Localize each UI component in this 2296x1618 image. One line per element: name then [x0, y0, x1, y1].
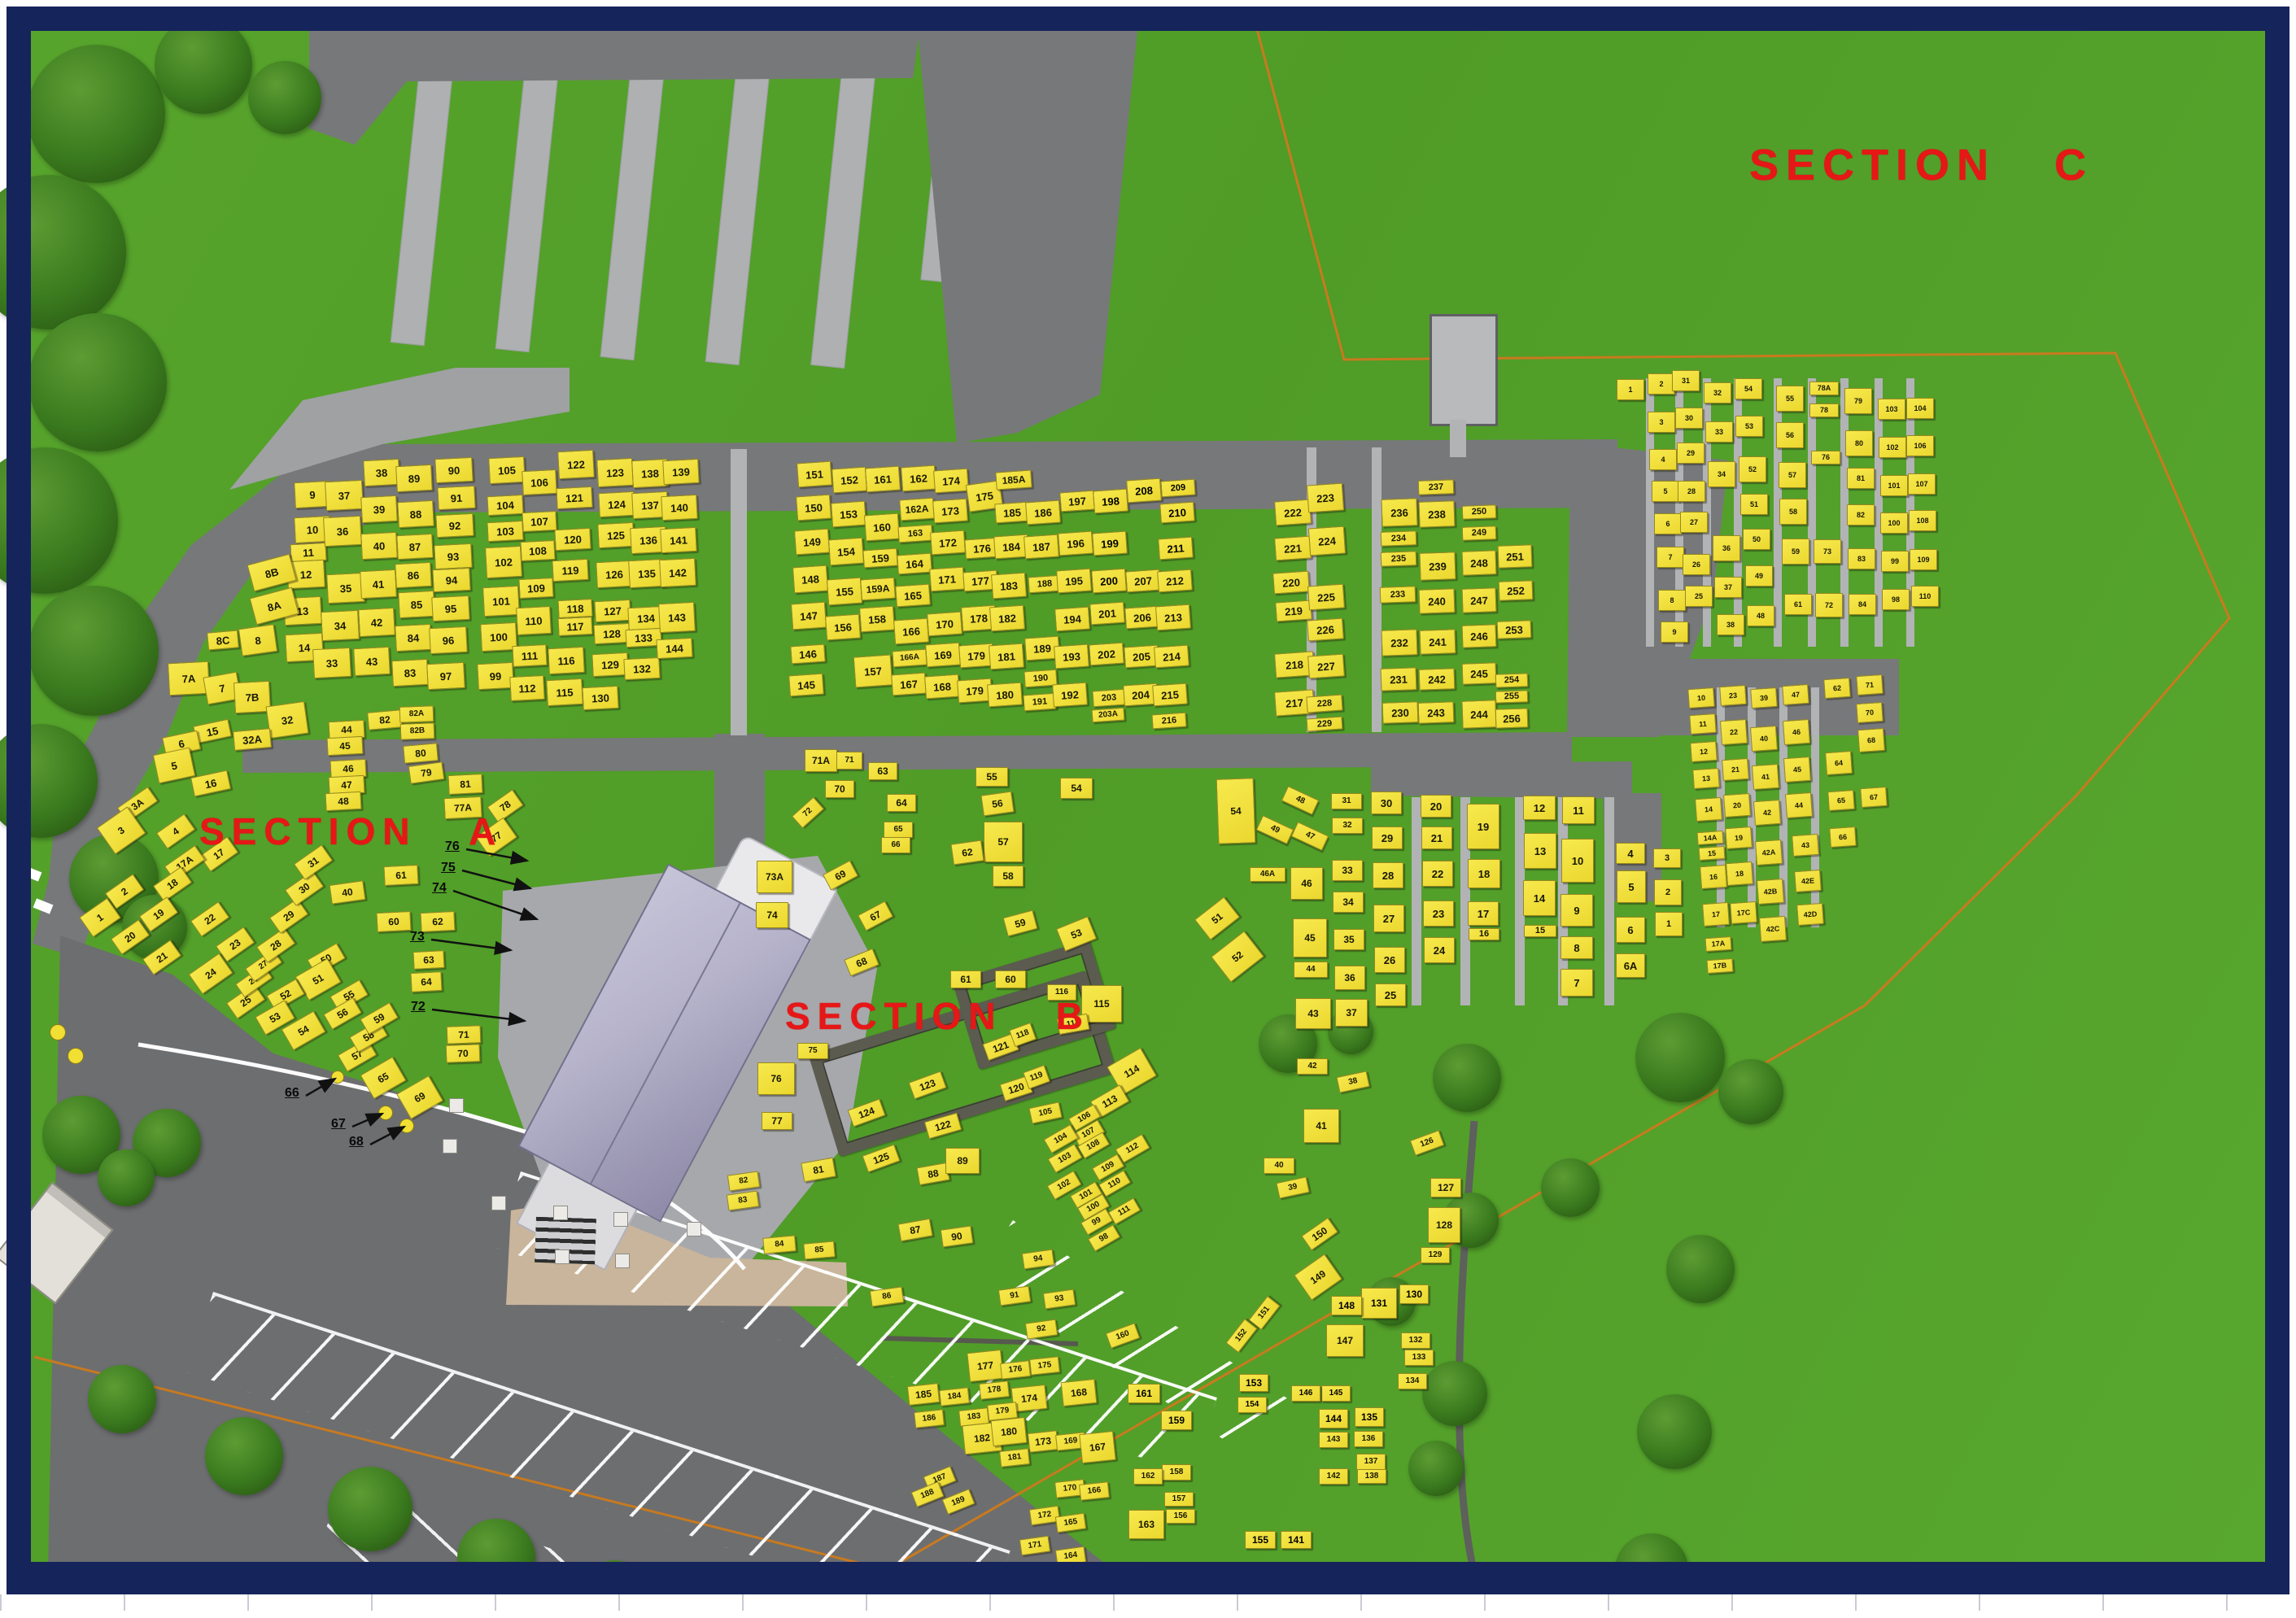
plot-sectionC-top-37[interactable]: 37 [1714, 577, 1742, 598]
plot-band-199[interactable]: 199 [1092, 531, 1128, 556]
plot-sectionC-top-27[interactable]: 27 [1680, 512, 1708, 533]
plot-sectionB-186[interactable]: 186 [914, 1409, 945, 1428]
plot-sectionC-bottom-47[interactable]: 47 [1782, 684, 1809, 705]
plot-sectionC-top-31[interactable]: 31 [1672, 370, 1700, 391]
plot-band-211[interactable]: 211 [1158, 537, 1194, 560]
plot-sectionC-top-58[interactable]: 58 [1779, 499, 1807, 525]
plot-band-215[interactable]: 215 [1152, 683, 1188, 707]
plot-band-236[interactable]: 236 [1381, 498, 1417, 527]
plot-band-222[interactable]: 222 [1274, 499, 1312, 526]
plot-band-141[interactable]: 141 [660, 527, 697, 553]
plot-band-224[interactable]: 224 [1308, 526, 1346, 556]
plot-sectionB-34[interactable]: 34 [1333, 892, 1364, 913]
plot-sectionC-top-82[interactable]: 82 [1847, 504, 1875, 526]
plot-sectionC-top-36[interactable]: 36 [1713, 535, 1740, 561]
plot-sectionB-42[interactable]: 42 [1297, 1058, 1328, 1075]
plot-band-238[interactable]: 238 [1418, 500, 1455, 528]
plot-sectionB-155[interactable]: 155 [1245, 1531, 1276, 1549]
plot-sectionC-top-61[interactable]: 61 [1784, 594, 1812, 615]
plot-sectionB-148[interactable]: 148 [1331, 1296, 1362, 1315]
plot-band-91[interactable]: 91 [437, 486, 475, 510]
plot-sectionC-bottom-41[interactable]: 41 [1752, 764, 1779, 790]
plot-sectionB-128[interactable]: 128 [1428, 1207, 1460, 1243]
plot-band-187[interactable]: 187 [1024, 534, 1059, 560]
plot-sectionC-top-56[interactable]: 56 [1776, 422, 1804, 448]
plot-sectionA-45[interactable]: 45 [326, 736, 363, 756]
plot-band-161[interactable]: 161 [865, 466, 901, 493]
plot-sectionC-top-106[interactable]: 106 [1906, 435, 1934, 456]
plot-sectionC-bottom-66[interactable]: 66 [1829, 826, 1857, 848]
plot-sectionC-bottom-19[interactable]: 19 [1725, 826, 1753, 849]
plot-sectionC-bottom-12[interactable]: 12 [1690, 741, 1718, 762]
plot-sectionC-bottom-44[interactable]: 44 [1785, 792, 1813, 818]
plot-band-148[interactable]: 148 [792, 565, 828, 594]
plot-sectionB-54[interactable]: 54 [1060, 778, 1093, 799]
plot-sectionC-top-3[interactable]: 3 [1648, 412, 1675, 433]
plot-sectionC-bottom-13[interactable]: 13 [1692, 768, 1720, 789]
plot-midblock-17[interactable]: 17 [1468, 901, 1499, 926]
plot-sectionB-144[interactable]: 144 [1319, 1409, 1348, 1428]
plot-sectionC-top-6[interactable]: 6 [1654, 513, 1682, 534]
plot-band-32A[interactable]: 32A [233, 728, 272, 751]
plot-sectionB-33[interactable]: 33 [1332, 860, 1363, 881]
plot-midblock-4[interactable]: 4 [1616, 843, 1645, 864]
plot-band-41[interactable]: 41 [360, 569, 397, 599]
plot-sectionB-185[interactable]: 185 [907, 1383, 940, 1406]
plot-band-174[interactable]: 174 [933, 469, 969, 494]
plot-midblock-15[interactable]: 15 [1524, 925, 1556, 937]
plot-band-117[interactable]: 117 [557, 617, 592, 636]
plot-band-234[interactable]: 234 [1381, 530, 1417, 547]
plot-band-145[interactable]: 145 [788, 674, 824, 697]
plot-band-119[interactable]: 119 [552, 559, 588, 582]
plot-sectionC-bottom-42E[interactable]: 42E [1794, 870, 1822, 892]
plot-sectionC-top-8[interactable]: 8 [1658, 590, 1686, 611]
plot-sectionC-top-4[interactable]: 4 [1649, 449, 1677, 470]
plot-band-126[interactable]: 126 [596, 560, 633, 588]
plot-sectionC-bottom-70[interactable]: 70 [1856, 702, 1884, 723]
plot-sectionC-top-7[interactable]: 7 [1657, 547, 1684, 568]
plot-midblock-1[interactable]: 1 [1655, 912, 1683, 936]
plot-band-147[interactable]: 147 [791, 602, 827, 630]
plot-band-196[interactable]: 196 [1058, 531, 1093, 556]
plot-sectionC-bottom-14A[interactable]: 14A [1696, 831, 1723, 845]
plot-sectionC-top-72[interactable]: 72 [1815, 593, 1843, 617]
plot-sectionB-85[interactable]: 85 [803, 1241, 836, 1259]
plot-band-163[interactable]: 163 [897, 525, 932, 543]
plot-sectionC-top-99[interactable]: 99 [1881, 551, 1909, 572]
plot-sectionC-bottom-62[interactable]: 62 [1823, 678, 1851, 699]
plot-sectionC-bottom-43[interactable]: 43 [1792, 834, 1819, 857]
plot-sectionB-168[interactable]: 168 [1061, 1379, 1098, 1406]
plot-band-92[interactable]: 92 [435, 513, 474, 538]
plot-sectionB-89[interactable]: 89 [945, 1148, 980, 1174]
plot-band-198[interactable]: 198 [1093, 489, 1128, 514]
plot-sectionB-159[interactable]: 159 [1161, 1411, 1192, 1430]
plot-band-202[interactable]: 202 [1089, 643, 1124, 666]
plot-band-154[interactable]: 154 [828, 538, 864, 566]
plot-band-216[interactable]: 216 [1151, 713, 1186, 730]
plot-sectionB-154[interactable]: 154 [1237, 1397, 1267, 1413]
plot-band-185[interactable]: 185 [994, 502, 1030, 524]
plot-sectionC-top-38[interactable]: 38 [1717, 614, 1744, 635]
plot-band-115[interactable]: 115 [546, 678, 583, 706]
plot-band-153[interactable]: 153 [831, 501, 866, 528]
plot-band-164[interactable]: 164 [897, 553, 932, 575]
plot-sectionB-62[interactable]: 62 [950, 840, 984, 865]
plot-band-159[interactable]: 159 [862, 548, 897, 569]
plot-band-33[interactable]: 33 [312, 648, 351, 678]
plot-sectionA-64[interactable]: 64 [410, 971, 442, 992]
plot-sectionC-bottom-10[interactable]: 10 [1687, 687, 1715, 709]
plot-band-83[interactable]: 83 [391, 659, 429, 687]
plot-sectionB-43[interactable]: 43 [1295, 998, 1331, 1029]
plot-sectionC-top-2[interactable]: 2 [1648, 373, 1675, 395]
plot-band-239[interactable]: 239 [1419, 552, 1456, 581]
plot-midblock-18[interactable]: 18 [1468, 859, 1500, 888]
plot-sectionB-41[interactable]: 41 [1303, 1109, 1339, 1143]
plot-band-221[interactable]: 221 [1274, 535, 1312, 560]
plot-sectionA-61[interactable]: 61 [383, 865, 418, 886]
plot-band-112[interactable]: 112 [509, 675, 545, 701]
plot-sectionB-65[interactable]: 65 [884, 822, 913, 838]
plot-sectionB-76[interactable]: 76 [757, 1062, 795, 1095]
plot-midblock-26[interactable]: 26 [1374, 947, 1405, 973]
plot-midblock-14[interactable]: 14 [1523, 880, 1556, 916]
plot-band-203A[interactable]: 203A [1091, 708, 1124, 723]
plot-midblock-25[interactable]: 25 [1375, 983, 1406, 1006]
plot-band-210[interactable]: 210 [1159, 502, 1195, 524]
plot-band-209[interactable]: 209 [1160, 479, 1195, 498]
plot-sectionB-70[interactable]: 70 [825, 780, 854, 798]
plot-band-86[interactable]: 86 [395, 562, 432, 588]
plot-band-212[interactable]: 212 [1157, 569, 1193, 593]
plot-sectionB-184[interactable]: 184 [939, 1387, 970, 1406]
plot-sectionC-bottom-11[interactable]: 11 [1689, 713, 1717, 735]
plot-sectionC-bottom-42[interactable]: 42 [1753, 800, 1781, 826]
plot-band-42[interactable]: 42 [358, 608, 395, 637]
plot-sectionB-177[interactable]: 177 [967, 1350, 1004, 1382]
plot-band-247[interactable]: 247 [1461, 587, 1496, 613]
plot-band-103[interactable]: 103 [487, 521, 523, 542]
plot-midblock-10[interactable]: 10 [1561, 839, 1594, 883]
plot-sectionB-137[interactable]: 137 [1356, 1454, 1386, 1470]
plot-midblock-22[interactable]: 22 [1422, 861, 1453, 887]
plot-sectionC-top-29[interactable]: 29 [1677, 443, 1705, 464]
plot-band-37[interactable]: 37 [325, 480, 364, 511]
plot-sectionC-bottom-68[interactable]: 68 [1857, 728, 1885, 752]
plot-band-104[interactable]: 104 [487, 495, 523, 516]
plot-sectionB-129[interactable]: 129 [1421, 1247, 1450, 1263]
plot-band-125[interactable]: 125 [597, 522, 635, 548]
plot-sectionB-132[interactable]: 132 [1401, 1332, 1430, 1349]
plot-band-226[interactable]: 226 [1307, 617, 1344, 641]
plot-band-241[interactable]: 241 [1419, 629, 1456, 655]
plot-band-166A[interactable]: 166A [892, 649, 927, 668]
plot-sectionA-82[interactable]: 82 [367, 709, 403, 730]
plot-sectionB-66[interactable]: 66 [881, 837, 910, 853]
plot-band-87[interactable]: 87 [396, 534, 434, 560]
plot-band-155[interactable]: 155 [827, 578, 862, 606]
plot-band-240[interactable]: 240 [1418, 588, 1455, 614]
plot-sectionB-57[interactable]: 57 [984, 822, 1023, 862]
plot-midblock-27[interactable]: 27 [1373, 905, 1404, 932]
plot-sectionB-46A[interactable]: 46A [1250, 867, 1285, 882]
plot-sectionB-46[interactable]: 46 [1290, 867, 1323, 900]
plot-sectionC-bottom-22[interactable]: 22 [1720, 719, 1748, 745]
plot-sectionC-top-26[interactable]: 26 [1683, 554, 1710, 575]
plot-band-173[interactable]: 173 [932, 499, 968, 524]
plot-band-40[interactable]: 40 [360, 532, 398, 560]
plot-band-256[interactable]: 256 [1495, 708, 1529, 728]
plot-band-246[interactable]: 246 [1462, 624, 1497, 648]
plot-sectionB-31[interactable]: 31 [1331, 793, 1362, 809]
plot-midblock-24[interactable]: 24 [1424, 937, 1455, 963]
plot-band-130[interactable]: 130 [582, 686, 618, 710]
plot-sectionC-top-34[interactable]: 34 [1708, 461, 1735, 487]
plot-band-192[interactable]: 192 [1052, 683, 1088, 708]
plot-midblock-9[interactable]: 9 [1560, 894, 1593, 927]
plot-band-242[interactable]: 242 [1419, 668, 1456, 691]
plot-sectionC-top-78A[interactable]: 78A [1809, 382, 1839, 395]
plot-sectionB-63[interactable]: 63 [868, 762, 897, 780]
plot-sectionA-48[interactable]: 48 [325, 792, 361, 811]
plot-band-143[interactable]: 143 [658, 602, 696, 633]
plot-sectionC-top-101[interactable]: 101 [1880, 475, 1908, 496]
plot-sectionB-138[interactable]: 138 [1357, 1469, 1386, 1484]
plot-band-181[interactable]: 181 [989, 643, 1024, 670]
plot-sectionC-top-59[interactable]: 59 [1782, 539, 1809, 565]
plot-band-233[interactable]: 233 [1380, 586, 1416, 604]
plot-band-252[interactable]: 252 [1499, 580, 1534, 600]
plot-sectionC-top-33[interactable]: 33 [1705, 421, 1733, 443]
plot-band-144[interactable]: 144 [656, 638, 692, 659]
plot-sectionB-35[interactable]: 35 [1334, 929, 1364, 950]
plot-band-93[interactable]: 93 [434, 543, 473, 569]
plot-band-142[interactable]: 142 [659, 558, 696, 587]
plot-band-8C[interactable]: 8C [207, 630, 239, 650]
plot-sectionB-130[interactable]: 130 [1399, 1284, 1429, 1304]
plot-band-84[interactable]: 84 [395, 624, 432, 652]
plot-band-102[interactable]: 102 [485, 546, 522, 578]
plot-band-108[interactable]: 108 [520, 540, 555, 561]
plot-band-183[interactable]: 183 [991, 573, 1027, 600]
plot-midblock-5[interactable]: 5 [1617, 870, 1646, 903]
plot-sectionC-top-48[interactable]: 48 [1747, 605, 1774, 626]
plot-sectionC-top-54[interactable]: 54 [1735, 378, 1762, 399]
plot-band-123[interactable]: 123 [596, 458, 634, 487]
plot-sectionC-top-55[interactable]: 55 [1776, 386, 1804, 412]
plot-sectionC-top-104[interactable]: 104 [1906, 398, 1934, 419]
plot-band-120[interactable]: 120 [554, 528, 591, 551]
plot-band-167[interactable]: 167 [891, 673, 927, 696]
plot-band-235[interactable]: 235 [1381, 551, 1417, 567]
plot-sectionC-bottom-17C[interactable]: 17C [1730, 901, 1757, 924]
plot-band-245[interactable]: 245 [1462, 662, 1497, 684]
plot-band-106[interactable]: 106 [522, 469, 557, 495]
plot-midblock-16[interactable]: 16 [1469, 928, 1499, 940]
plot-band-244[interactable]: 244 [1461, 700, 1496, 728]
plot-band-171[interactable]: 171 [929, 567, 965, 592]
plot-sectionA-71[interactable]: 71 [447, 1025, 482, 1044]
plot-band-251[interactable]: 251 [1498, 544, 1533, 568]
plot-band-213[interactable]: 213 [1155, 604, 1191, 631]
plot-sectionC-top-79[interactable]: 79 [1844, 388, 1872, 414]
plot-sectionB-158[interactable]: 158 [1162, 1464, 1191, 1481]
plot-sectionB-167[interactable]: 167 [1079, 1431, 1116, 1463]
plot-sectionC-top-30[interactable]: 30 [1675, 408, 1703, 429]
plot-band-228[interactable]: 228 [1306, 694, 1342, 713]
plot-band-105[interactable]: 105 [488, 456, 526, 484]
plot-sectionC-bottom-67[interactable]: 67 [1860, 787, 1888, 808]
plot-sectionC-top-51[interactable]: 51 [1740, 494, 1768, 515]
plot-sectionC-top-81[interactable]: 81 [1847, 468, 1875, 489]
plot-sectionB-142[interactable]: 142 [1319, 1468, 1348, 1485]
plot-sectionB-175[interactable]: 175 [1029, 1356, 1060, 1376]
plot-sectionC-bottom-45[interactable]: 45 [1783, 757, 1811, 783]
plot-band-85[interactable]: 85 [398, 591, 435, 618]
plot-midblock-23[interactable]: 23 [1423, 901, 1454, 927]
plot-sectionC-bottom-17[interactable]: 17 [1702, 902, 1730, 927]
plot-midblock-2[interactable]: 2 [1654, 879, 1682, 905]
plot-band-214[interactable]: 214 [1154, 645, 1189, 669]
plot-band-255[interactable]: 255 [1495, 690, 1528, 703]
plot-sectionB-45[interactable]: 45 [1293, 918, 1327, 957]
plot-sectionA-62[interactable]: 62 [420, 911, 455, 932]
plot-sectionB-60[interactable]: 60 [995, 970, 1026, 988]
plot-band-248[interactable]: 248 [1461, 550, 1496, 575]
plot-band-232[interactable]: 232 [1381, 629, 1417, 656]
plot-sectionA-60[interactable]: 60 [376, 911, 411, 932]
plot-band-124[interactable]: 124 [598, 491, 635, 517]
plot-midblock-12[interactable]: 12 [1523, 796, 1556, 820]
plot-midblock-20[interactable]: 20 [1421, 795, 1451, 818]
plot-midblock-30[interactable]: 30 [1371, 792, 1402, 814]
plot-band-253[interactable]: 253 [1497, 620, 1532, 639]
plot-midblock-6A[interactable]: 6A [1616, 953, 1645, 978]
plot-sectionC-bottom-40[interactable]: 40 [1750, 726, 1778, 752]
plot-band-180[interactable]: 180 [987, 683, 1023, 708]
plot-band-250[interactable]: 250 [1462, 504, 1497, 519]
plot-sectionC-top-1[interactable]: 1 [1617, 379, 1644, 400]
plot-band-97[interactable]: 97 [426, 662, 465, 690]
plot-sectionB-173[interactable]: 173 [1028, 1430, 1059, 1453]
plot-band-109[interactable]: 109 [518, 578, 553, 599]
plot-band-149[interactable]: 149 [794, 529, 830, 556]
plot-sectionC-top-107[interactable]: 107 [1908, 473, 1936, 495]
plot-band-162[interactable]: 162 [901, 465, 936, 492]
plot-sectionC-top-102[interactable]: 102 [1879, 437, 1906, 458]
plot-band-107[interactable]: 107 [522, 511, 557, 532]
plot-band-191[interactable]: 191 [1023, 693, 1056, 712]
plot-band-182[interactable]: 182 [989, 605, 1025, 632]
plot-band-254[interactable]: 254 [1495, 673, 1529, 687]
plot-sectionA-81[interactable]: 81 [447, 774, 482, 795]
plot-sectionB-147[interactable]: 147 [1326, 1324, 1364, 1357]
plot-band-229[interactable]: 229 [1306, 716, 1342, 731]
plot-midblock-8[interactable]: 8 [1560, 936, 1593, 959]
plot-band-203[interactable]: 203 [1092, 689, 1125, 708]
plot-sectionB-133[interactable]: 133 [1404, 1350, 1434, 1366]
plot-band-116[interactable]: 116 [548, 647, 585, 674]
plot-sectionB-131[interactable]: 131 [1361, 1288, 1397, 1319]
plot-sectionB-145[interactable]: 145 [1321, 1385, 1351, 1402]
plot-sectionB-153[interactable]: 153 [1239, 1374, 1268, 1392]
plot-band-140[interactable]: 140 [661, 495, 698, 521]
plot-sectionC-bottom-17A[interactable]: 17A [1705, 935, 1731, 951]
plot-sectionB-71[interactable]: 71 [836, 752, 862, 770]
plot-band-193[interactable]: 193 [1054, 644, 1089, 669]
plot-sectionC-top-98[interactable]: 98 [1882, 589, 1910, 610]
plot-sectionC-bottom-42A[interactable]: 42A [1755, 840, 1783, 866]
plot-sectionC-top-84[interactable]: 84 [1849, 594, 1876, 615]
plot-midblock-13[interactable]: 13 [1524, 833, 1556, 869]
plot-sectionA-63[interactable]: 63 [412, 950, 444, 970]
plot-band-208[interactable]: 208 [1126, 478, 1162, 504]
plot-sectionB-36[interactable]: 36 [1334, 966, 1365, 990]
plot-sectionC-top-32[interactable]: 32 [1704, 382, 1731, 403]
plot-sectionB-64[interactable]: 64 [887, 794, 916, 812]
plot-sectionB-178[interactable]: 178 [979, 1380, 1010, 1400]
plot-sectionB-56[interactable]: 56 [980, 791, 1014, 816]
plot-band-156[interactable]: 156 [825, 614, 861, 641]
plot-sectionB-163[interactable]: 163 [1128, 1510, 1164, 1539]
plot-midblock-3[interactable]: 3 [1653, 848, 1681, 868]
plot-sectionC-bottom-16[interactable]: 16 [1700, 865, 1727, 889]
plot-sectionB-136[interactable]: 136 [1354, 1431, 1383, 1447]
plot-sectionC-top-9[interactable]: 9 [1661, 621, 1688, 643]
plot-band-230[interactable]: 230 [1382, 701, 1419, 724]
plot-midblock-21[interactable]: 21 [1421, 826, 1452, 849]
plot-sectionB-180[interactable]: 180 [990, 1417, 1027, 1446]
plot-sectionC-top-57[interactable]: 57 [1779, 462, 1806, 488]
plot-band-127[interactable]: 127 [594, 600, 631, 622]
plot-midblock-19[interactable]: 19 [1467, 804, 1499, 849]
plot-band-186[interactable]: 186 [1025, 500, 1061, 526]
plot-sectionC-top-53[interactable]: 53 [1735, 416, 1763, 437]
plot-band-121[interactable]: 121 [556, 486, 592, 509]
plot-sectionB-32[interactable]: 32 [1332, 818, 1363, 834]
plot-band-38[interactable]: 38 [363, 459, 400, 486]
plot-midblock-11[interactable]: 11 [1562, 796, 1595, 824]
plot-sectionB-166[interactable]: 166 [1079, 1481, 1110, 1501]
plot-band-200[interactable]: 200 [1091, 569, 1127, 594]
plot-band-207[interactable]: 207 [1125, 569, 1161, 593]
plot-sectionB-84[interactable]: 84 [762, 1235, 797, 1254]
plot-sectionC-bottom-42B[interactable]: 42B [1757, 879, 1784, 905]
plot-midblock-7[interactable]: 7 [1560, 969, 1593, 997]
plot-band-32[interactable]: 32 [265, 701, 308, 739]
plot-sectionB-54[interactable]: 54 [1216, 778, 1256, 844]
plot-band-195[interactable]: 195 [1056, 569, 1092, 594]
plot-sectionC-top-28[interactable]: 28 [1678, 481, 1705, 502]
plot-sectionC-top-52[interactable]: 52 [1739, 456, 1766, 482]
plot-band-160[interactable]: 160 [864, 513, 900, 542]
plot-band-88[interactable]: 88 [397, 500, 434, 528]
plot-sectionC-bottom-15[interactable]: 15 [1698, 846, 1725, 861]
plot-sectionC-top-80[interactable]: 80 [1845, 430, 1873, 456]
plot-band-101[interactable]: 101 [482, 586, 520, 617]
plot-band-170[interactable]: 170 [927, 612, 962, 637]
plot-sectionC-bottom-71[interactable]: 71 [1856, 674, 1884, 696]
plot-band-94[interactable]: 94 [432, 568, 470, 592]
plot-sectionA-82A[interactable]: 82A [399, 705, 434, 722]
plot-band-95[interactable]: 95 [431, 595, 470, 621]
plot-band-237[interactable]: 237 [1418, 479, 1455, 495]
plot-sectionB-161[interactable]: 161 [1128, 1384, 1160, 1403]
plot-sectionB-135[interactable]: 135 [1355, 1407, 1384, 1427]
plot-sectionC-top-50[interactable]: 50 [1743, 529, 1770, 550]
